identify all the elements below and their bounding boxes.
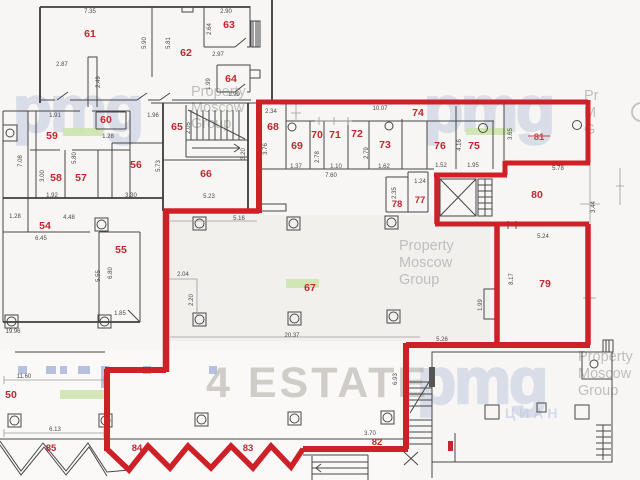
svg-text:7.08: 7.08 (18, 155, 24, 167)
svg-text:2.05: 2.05 (186, 122, 192, 134)
svg-text:85: 85 (46, 443, 57, 454)
svg-text:5.80: 5.80 (72, 152, 78, 164)
svg-text:3.20: 3.20 (241, 148, 247, 160)
svg-text:Group: Group (399, 272, 439, 288)
svg-text:84: 84 (132, 443, 143, 454)
svg-text:2.35: 2.35 (392, 187, 398, 199)
svg-text:Property: Property (399, 238, 455, 254)
svg-text:68: 68 (267, 121, 279, 133)
svg-text:82: 82 (372, 437, 383, 448)
svg-text:6.13: 6.13 (49, 427, 61, 433)
svg-text:67: 67 (304, 282, 316, 294)
svg-text:2.79: 2.79 (364, 147, 370, 159)
svg-text:1.52: 1.52 (435, 163, 447, 169)
svg-text:1.99: 1.99 (228, 92, 240, 98)
svg-text:79: 79 (539, 278, 551, 290)
svg-text:2.64: 2.64 (207, 23, 213, 35)
svg-text:1.99: 1.99 (206, 78, 212, 90)
svg-text:50: 50 (5, 389, 17, 401)
svg-text:83: 83 (243, 443, 254, 454)
svg-text:2.97: 2.97 (212, 52, 224, 58)
svg-text:63: 63 (223, 19, 235, 31)
svg-text:64: 64 (225, 73, 237, 85)
svg-text:61: 61 (84, 28, 96, 40)
svg-text:1.91: 1.91 (49, 113, 61, 119)
svg-text:5.81: 5.81 (166, 37, 172, 49)
svg-text:5.90: 5.90 (142, 37, 148, 49)
svg-text:2.34: 2.34 (265, 109, 277, 115)
svg-text:1.28: 1.28 (9, 214, 21, 220)
svg-text:71: 71 (329, 129, 341, 141)
svg-text:74: 74 (412, 107, 424, 119)
svg-text:65: 65 (171, 121, 183, 133)
svg-text:69: 69 (291, 140, 303, 152)
svg-text:54: 54 (39, 220, 51, 232)
svg-text:62: 62 (180, 47, 192, 59)
svg-text:1.85: 1.85 (114, 311, 126, 317)
svg-text:2.87: 2.87 (56, 62, 68, 68)
svg-text:1.92: 1.92 (46, 193, 58, 199)
svg-text:Moscow: Moscow (578, 366, 632, 382)
svg-text:75: 75 (468, 140, 480, 152)
svg-text:1.37: 1.37 (290, 164, 302, 170)
svg-text:Moscow: Moscow (399, 255, 453, 271)
svg-text:5.78: 5.78 (552, 166, 564, 172)
svg-text:6.45: 6.45 (35, 236, 47, 242)
svg-text:1.95: 1.95 (467, 163, 479, 169)
svg-text:2.04: 2.04 (177, 272, 189, 278)
svg-text:10.07: 10.07 (372, 106, 388, 112)
svg-text:70: 70 (311, 129, 323, 141)
svg-text:Moscow: Moscow (191, 100, 245, 116)
svg-text:1.28: 1.28 (102, 134, 114, 140)
svg-text:5.24: 5.24 (537, 234, 549, 240)
svg-text:6.93: 6.93 (393, 373, 399, 385)
svg-text:6.80: 6.80 (108, 267, 114, 279)
svg-text:76: 76 (434, 140, 446, 152)
svg-text:3.76: 3.76 (263, 143, 269, 155)
svg-text:7.60: 7.60 (325, 173, 337, 179)
svg-text:3.70: 3.70 (364, 431, 376, 437)
svg-text:1.62: 1.62 (378, 164, 390, 170)
svg-text:55: 55 (115, 244, 127, 256)
svg-text:2.90: 2.90 (220, 9, 232, 15)
svg-text:2.49: 2.49 (96, 76, 102, 88)
svg-text:8.17: 8.17 (509, 273, 515, 285)
svg-text:1.96: 1.96 (147, 113, 159, 119)
svg-text:4.48: 4.48 (63, 215, 75, 221)
svg-text:60: 60 (100, 114, 112, 126)
svg-text:73: 73 (379, 139, 391, 151)
svg-text:77: 77 (415, 195, 426, 206)
svg-text:3.44: 3.44 (591, 201, 597, 213)
svg-text:19.96: 19.96 (5, 329, 21, 335)
svg-text:1.99: 1.99 (478, 299, 484, 311)
svg-text:58: 58 (50, 172, 62, 184)
svg-text:20.37: 20.37 (284, 333, 300, 339)
svg-text:5.16: 5.16 (233, 216, 245, 222)
svg-text:66: 66 (200, 168, 212, 180)
svg-text:7.35: 7.35 (84, 9, 96, 15)
svg-text:3.00: 3.00 (40, 170, 46, 182)
svg-text:5.26: 5.26 (436, 337, 448, 343)
svg-text:2.20: 2.20 (189, 294, 195, 306)
svg-text:11.60: 11.60 (17, 374, 32, 380)
svg-text:72: 72 (351, 128, 363, 140)
svg-text:ЦИАН: ЦИАН (505, 405, 562, 421)
svg-text:78: 78 (392, 199, 403, 210)
svg-text:5.23: 5.23 (203, 194, 215, 200)
svg-text:57: 57 (75, 172, 87, 184)
svg-text:4.16: 4.16 (457, 139, 463, 151)
svg-text:56: 56 (130, 159, 142, 171)
svg-text:1.10: 1.10 (330, 164, 342, 170)
svg-text:5.73: 5.73 (156, 160, 162, 172)
svg-text:59: 59 (46, 130, 58, 142)
svg-text:2.78: 2.78 (315, 151, 321, 163)
svg-text:80: 80 (531, 189, 543, 201)
svg-text:1.24: 1.24 (414, 179, 426, 185)
svg-text:5.55: 5.55 (96, 270, 102, 282)
svg-text:3.30: 3.30 (125, 193, 137, 199)
svg-text:3.65: 3.65 (508, 128, 514, 140)
svg-text:81: 81 (534, 132, 545, 143)
